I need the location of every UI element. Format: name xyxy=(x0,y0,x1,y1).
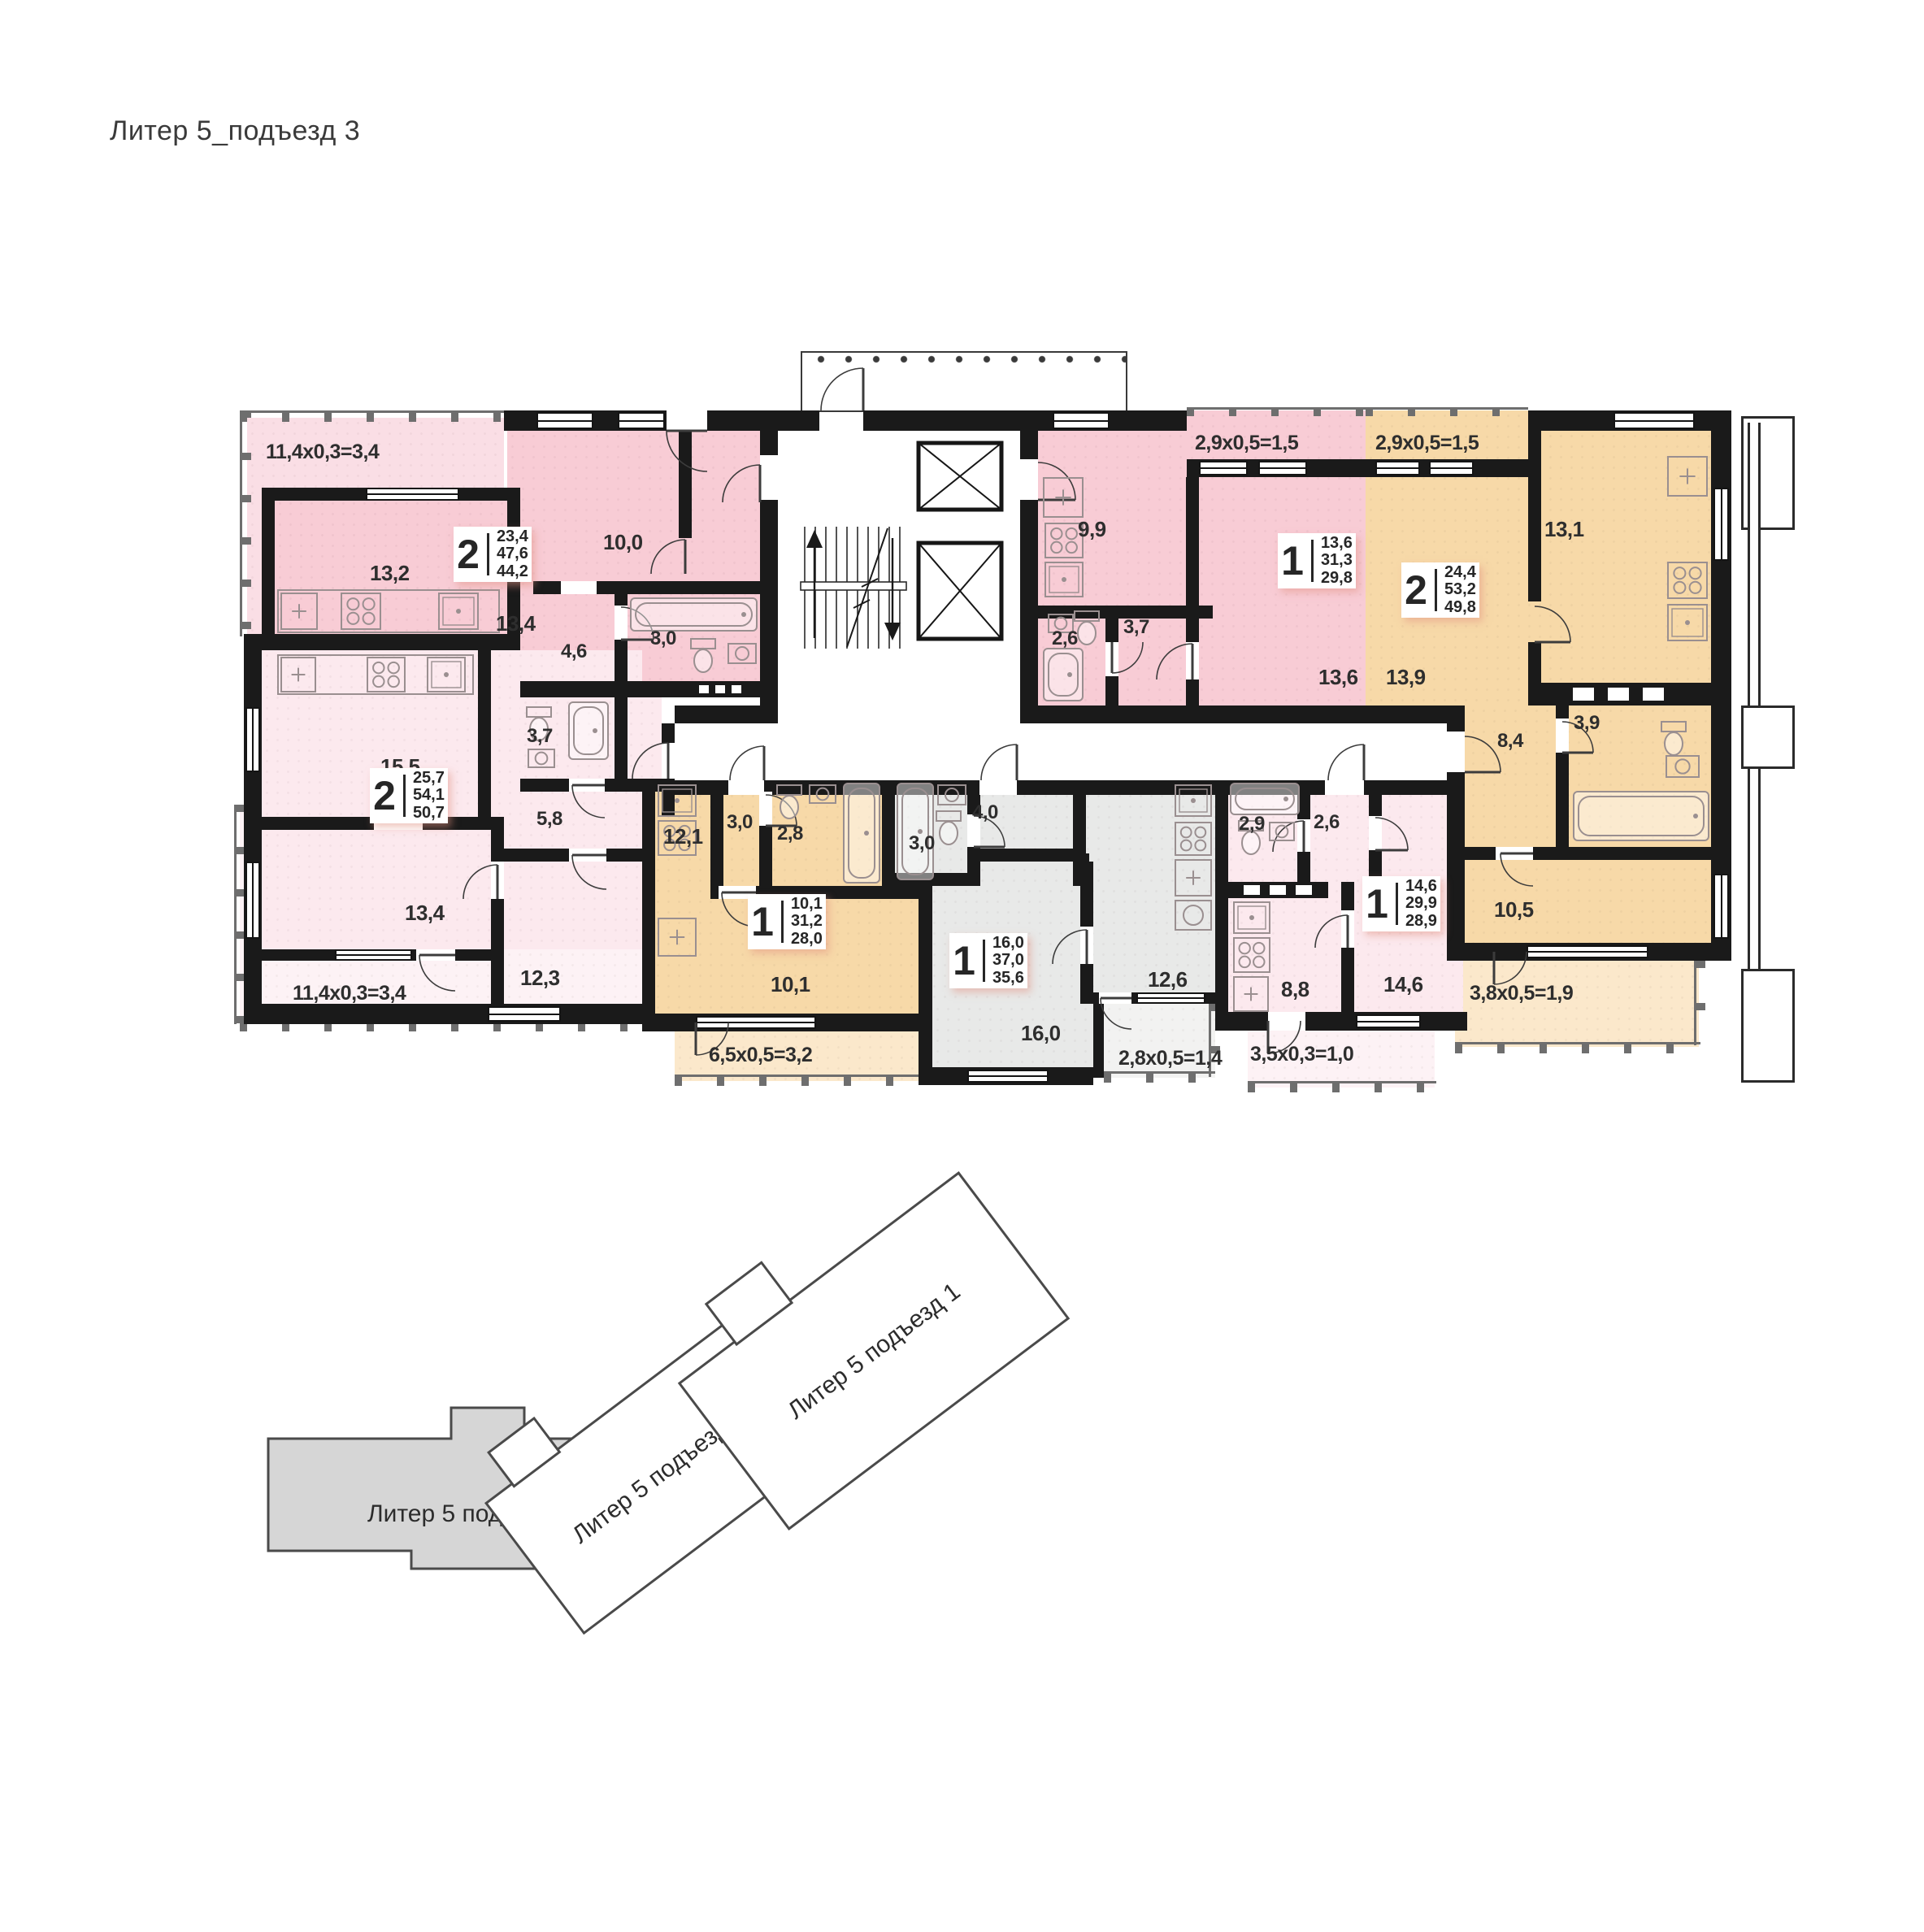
key-plan: Литер 5 подъезд 3 Литер 5 подъезд 2 Лите… xyxy=(0,0,1924,1932)
floor-plan-page: Литер 5_подъезд 3 xyxy=(0,0,1924,1932)
